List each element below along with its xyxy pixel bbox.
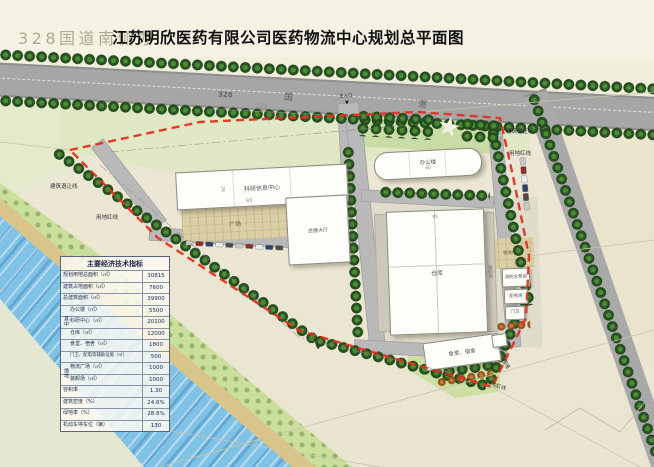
setback-line-label-west: 建筑退让线: [50, 185, 78, 191]
row-value: 1000: [142, 363, 169, 374]
row-label: 总建筑面积（㎡）: [61, 296, 142, 302]
row-value: 1000: [142, 375, 169, 386]
row-value: 28.8%: [142, 409, 169, 420]
row-value: 20100: [142, 317, 169, 328]
row-label: 容积率: [61, 388, 142, 394]
main-entrance-label: 主入口: [339, 95, 353, 100]
table-row: 仓库（㎡）12000: [61, 328, 169, 340]
page-title: 江苏明欣医药有限公司医药物流中心规划总平面图: [112, 31, 464, 47]
economic-indicators-table: 主要经济技术指标 其中 场地 规划用地总面积（㎡）30815 建筑占地面积（㎡）…: [60, 256, 170, 432]
table-row: 规划用地总面积（㎡）30815: [61, 270, 169, 282]
row-label: 规划用地总面积（㎡）: [61, 273, 142, 279]
road-number-label: 328: [218, 92, 233, 100]
research-dim-width: 26: [219, 186, 224, 192]
red-line-label-west: 用地红线: [96, 216, 118, 222]
road-dim-label: 270: [256, 104, 268, 111]
red-line-label-east: 用地红线: [509, 152, 531, 158]
row-label: 机动车停车位（辆）: [61, 423, 142, 429]
table-body: 其中 场地 规划用地总面积（㎡）30815 建筑占地面积（㎡）7600 总建筑面…: [61, 270, 169, 431]
row-value: 24.6%: [142, 398, 169, 409]
road-guo-label: 国: [284, 94, 293, 103]
table-row: 办公楼（㎡）5500: [61, 305, 169, 317]
row-value: 30815: [142, 271, 169, 282]
table-row: 绿地率（%）28.8%: [61, 408, 169, 420]
row-label: 物流广场（㎡）: [61, 365, 142, 371]
table-row: 食堂、宿舍（㎡）1800: [61, 339, 169, 351]
row-value: 1.30: [142, 386, 169, 397]
table-header: 主要经济技术指标: [61, 257, 169, 270]
row-value: 12000: [142, 329, 169, 340]
site-plan-canvas: 广场 物流广场 装卸场 科研信息中心 会展大厅: [0, 0, 654, 467]
table-row: 容积率1.30: [61, 385, 169, 397]
row-label: 门卫、配电等辅助设施（㎡）: [61, 354, 142, 359]
row-value: 39900: [142, 294, 169, 305]
table-row: 科研中心（㎡）20100: [61, 316, 169, 328]
row-label: 食堂、宿舍（㎡）: [61, 342, 142, 348]
row-label: 建筑占地面积（㎡）: [61, 285, 142, 291]
row-label: 办公楼（㎡）: [61, 308, 142, 314]
row-value: 500: [142, 352, 169, 363]
row-label: 科研中心（㎡）: [61, 319, 142, 325]
table-row: 建筑密度（%）24.6%: [61, 397, 169, 409]
table-row: 总建筑面积（㎡）39900: [61, 293, 169, 305]
road-dao-label: 道: [418, 101, 427, 110]
table-row: 机动车停车位（辆）130: [61, 420, 169, 432]
row-label: 仓库（㎡）: [61, 331, 142, 337]
table-row: 物流广场（㎡）1000: [61, 362, 169, 374]
table-row: 装卸场（㎡）1000: [61, 374, 169, 386]
table-group-b: 场地: [63, 368, 70, 378]
main-entrance-marker: ▼: [345, 101, 349, 106]
row-value: 5500: [142, 306, 169, 317]
table-row: 门卫、配电等辅助设施（㎡）500: [61, 351, 169, 363]
setback-line-label-east: 建筑退让线: [506, 130, 534, 136]
row-label: 绿地率（%）: [61, 411, 142, 417]
row-value: 130: [142, 421, 169, 432]
row-label: 装卸场（㎡）: [61, 377, 142, 383]
row-label: 建筑密度（%）: [61, 400, 142, 406]
row-value: 7600: [142, 283, 169, 294]
table-group-a: 其中: [63, 316, 70, 326]
research-dim-length: 93: [246, 199, 253, 204]
row-value: 1800: [142, 340, 169, 351]
table-row: 建筑占地面积（㎡）7600: [61, 282, 169, 294]
